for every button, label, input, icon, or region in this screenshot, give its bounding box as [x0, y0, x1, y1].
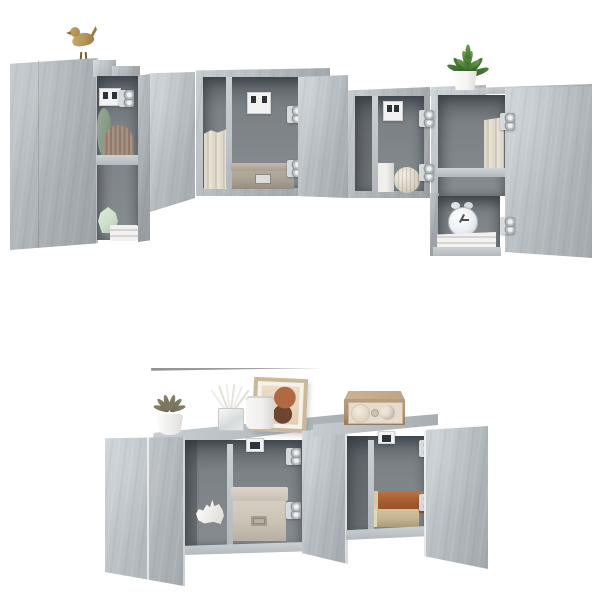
ribbed-sphere-vase [394, 167, 420, 193]
cabinet-a-shelf [96, 155, 140, 165]
bird-leg [80, 52, 83, 60]
radio-speaker [351, 404, 370, 423]
beige-box-handle [251, 516, 267, 526]
cream-books [204, 129, 227, 189]
hinge [500, 113, 515, 130]
cabinet-f-dark-bay [347, 436, 368, 532]
cabinet-d-bottom-edge [433, 247, 501, 256]
wall-bracket [99, 88, 121, 106]
cabinet-a-door-open [150, 72, 195, 212]
stacked-book-tan [374, 509, 419, 527]
clock-body [448, 207, 478, 237]
plant-leaf [466, 45, 471, 59]
hinge [286, 448, 301, 465]
cabinet-c-dark-bay [355, 96, 372, 191]
cabinet-e-inner-wall [185, 440, 197, 546]
radio [344, 391, 405, 425]
taupe-box-lid [231, 163, 295, 171]
hinge [119, 90, 134, 107]
cabinet-e-door-open [105, 437, 185, 587]
taupe-box-label [255, 174, 271, 184]
cabinet-d-shelf [437, 168, 506, 177]
square-vase [378, 163, 394, 192]
wall-bracket [383, 101, 403, 121]
cabinet-a-front [10, 58, 98, 250]
beige-box-lid [231, 487, 288, 501]
radio-knob [371, 409, 379, 417]
hinge [286, 502, 301, 519]
plant-pot [452, 71, 478, 90]
cabinet-a-side [138, 74, 150, 242]
cabinet-d-door-open [505, 86, 592, 258]
white-book-stack [110, 225, 138, 241]
bird-head [70, 27, 80, 37]
product-photo [0, 0, 600, 600]
alarm-clock [448, 202, 476, 238]
tv-bottom-frame [150, 368, 377, 372]
succulent-pot [156, 414, 184, 435]
pleated-fan-decor [103, 125, 134, 157]
bird-figurine [70, 24, 98, 60]
succulent-center [164, 402, 174, 410]
cylinder-vase [246, 396, 274, 429]
door-edge-highlight [147, 437, 149, 587]
door-edge-highlight [424, 426, 426, 569]
tv [150, 219, 377, 372]
diffuser-bottle [218, 408, 244, 431]
radio-dial [380, 405, 395, 420]
cabinet-a-seam [38, 60, 39, 248]
clock-hand [462, 219, 469, 221]
wall-bracket [378, 431, 395, 444]
wall-bracket [247, 92, 271, 114]
hinge [419, 110, 434, 127]
wall-bracket [246, 438, 264, 452]
cabinet-f-door-left-open [302, 428, 348, 564]
bird-beak [66, 31, 71, 35]
hinge [500, 217, 515, 234]
hinge [419, 164, 434, 181]
cabinet-f-door-right-open [424, 426, 488, 569]
cabinet-b-door-open [298, 75, 348, 198]
